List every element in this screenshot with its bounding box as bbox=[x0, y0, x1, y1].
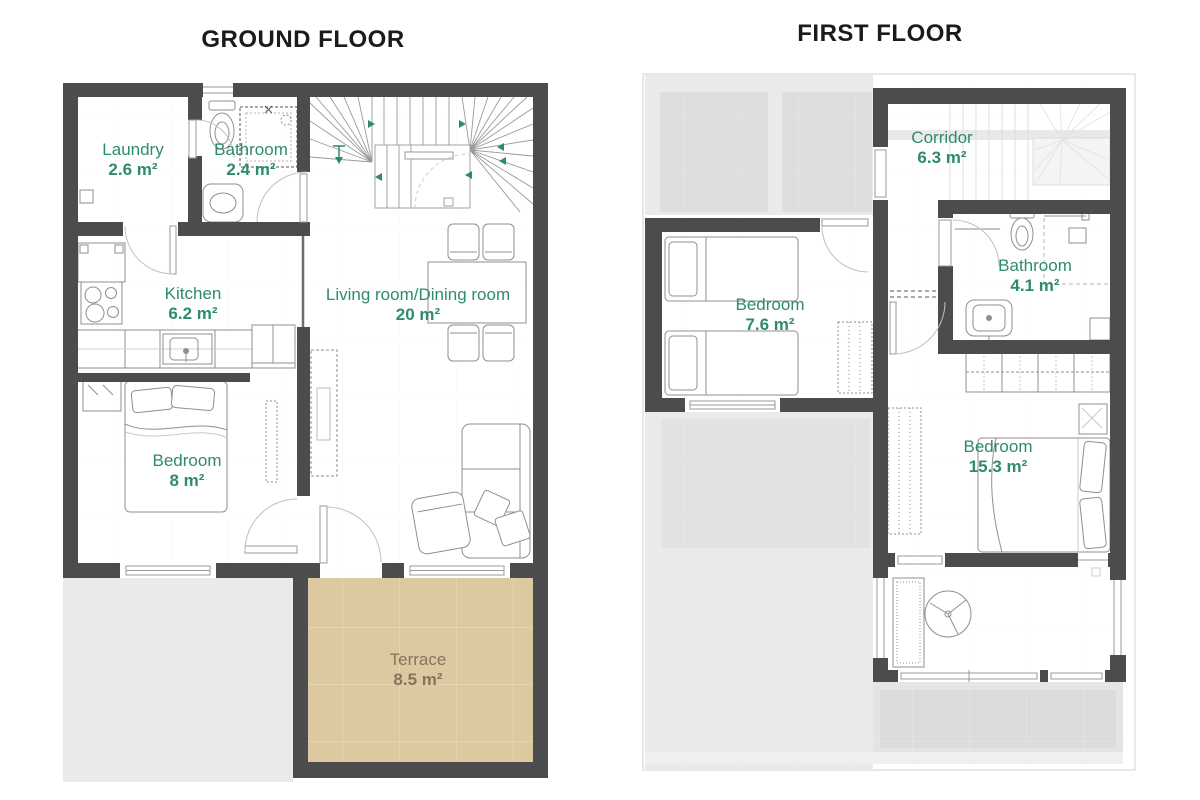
pillow bbox=[1079, 441, 1106, 493]
sink bbox=[203, 184, 243, 222]
room-label-bedroom-gf: Bedroom 8 m² bbox=[153, 451, 222, 491]
chaise-lounge bbox=[411, 491, 472, 555]
room-name: Terrace bbox=[390, 650, 447, 670]
floorplan-canvas: GROUND FLOOR FIRST FLOOR Laundry 2.6 m² … bbox=[0, 0, 1200, 800]
floorplan-drawing bbox=[0, 0, 1200, 800]
room-name: Kitchen bbox=[165, 284, 222, 304]
room-name: Bedroom bbox=[964, 437, 1033, 457]
room-label-kitchen: Kitchen 6.2 m² bbox=[165, 284, 222, 324]
room-area: 8 m² bbox=[153, 471, 222, 491]
room-label-terrace: Terrace 8.5 m² bbox=[390, 650, 447, 690]
pillow bbox=[171, 385, 215, 411]
pillow bbox=[1079, 497, 1106, 549]
room-label-laundry: Laundry 2.6 m² bbox=[102, 140, 163, 180]
pillow bbox=[669, 336, 697, 390]
room-name: Bedroom bbox=[736, 295, 805, 315]
room-label-corridor: Corridor 6.3 m² bbox=[911, 128, 972, 168]
room-label-bedroom-153: Bedroom 15.3 m² bbox=[964, 437, 1033, 477]
pillow bbox=[131, 387, 173, 413]
room-label-bathroom-gf: Bathroom 2.4 m² bbox=[214, 140, 288, 180]
floor-plan-ground bbox=[63, 83, 548, 782]
room-area: 20 m² bbox=[326, 305, 510, 325]
room-name: Bathroom bbox=[998, 256, 1072, 276]
room-area: 8.5 m² bbox=[390, 670, 447, 690]
room-area: 7.6 m² bbox=[736, 315, 805, 335]
room-area: 6.3 m² bbox=[911, 148, 972, 168]
room-name: Laundry bbox=[102, 140, 163, 160]
dining-chair bbox=[483, 325, 514, 361]
toilet bbox=[209, 101, 235, 110]
room-area: 2.6 m² bbox=[102, 160, 163, 180]
room-area: 4.1 m² bbox=[998, 276, 1072, 296]
pillow bbox=[669, 242, 697, 296]
room-area: 6.2 m² bbox=[165, 304, 222, 324]
floor-plan-first bbox=[643, 74, 1135, 770]
room-area: 15.3 m² bbox=[964, 457, 1033, 477]
first-floor-title: FIRST FLOOR bbox=[797, 20, 962, 48]
room-area: 2.4 m² bbox=[214, 160, 288, 180]
ground-floor-title: GROUND FLOOR bbox=[201, 26, 404, 54]
room-name: Living room/Dining room bbox=[326, 285, 510, 305]
room-name: Bathroom bbox=[214, 140, 288, 160]
room-label-bedroom-76: Bedroom 7.6 m² bbox=[736, 295, 805, 335]
room-name: Corridor bbox=[911, 128, 972, 148]
room-label-living-room: Living room/Dining room 20 m² bbox=[326, 285, 510, 325]
room-name: Bedroom bbox=[153, 451, 222, 471]
dining-chair bbox=[483, 224, 514, 260]
dining-chair bbox=[448, 224, 479, 260]
room-label-bathroom-ff: Bathroom 4.1 m² bbox=[998, 256, 1072, 296]
dining-chair bbox=[448, 325, 479, 361]
